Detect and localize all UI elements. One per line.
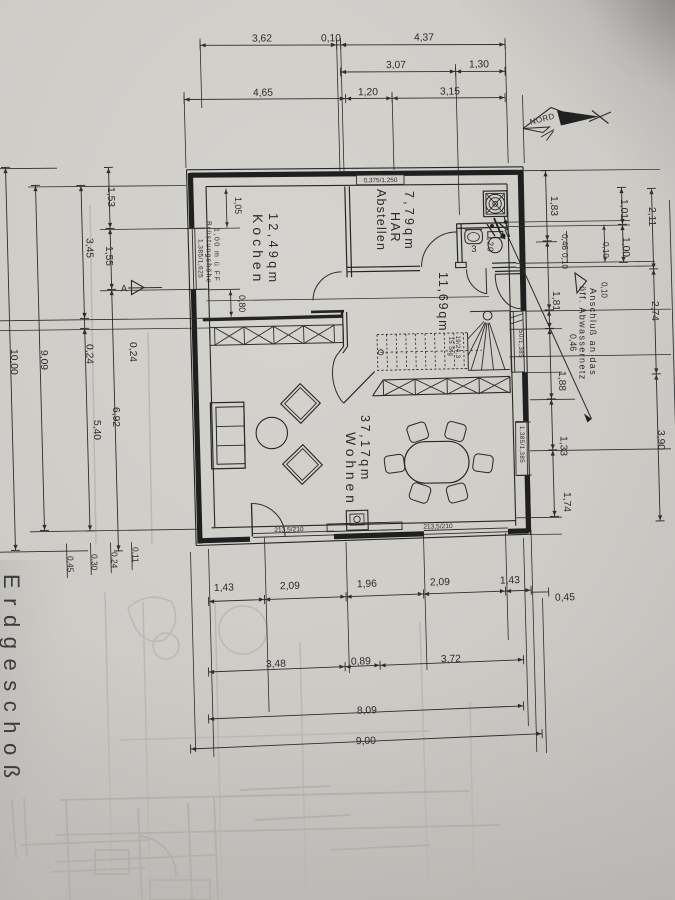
svg-text:HAR: HAR	[388, 212, 402, 243]
svg-text:0,24: 0,24	[127, 342, 138, 362]
svg-text:0,375/1,250: 0,375/1,250	[364, 177, 398, 184]
svg-text:,20: ,20	[486, 238, 496, 253]
svg-text:11,69qm: 11,69qm	[436, 272, 450, 332]
svg-text:öff. Abwassernetz: öff. Abwassernetz	[578, 286, 588, 381]
svg-text:0,10: 0,10	[601, 242, 610, 258]
svg-text:3,07: 3,07	[386, 60, 406, 71]
svg-text:3,15: 3,15	[440, 87, 460, 98]
svg-text:3,48: 3,48	[266, 659, 287, 671]
svg-text:1,00: 1,00	[620, 237, 631, 257]
svg-text:10,00: 10,00	[8, 349, 19, 375]
svg-text:Anschluß an das: Anschluß an das	[588, 288, 598, 376]
svg-text:7,79qm: 7,79qm	[402, 191, 416, 252]
svg-text:0,11: 0,11	[131, 547, 141, 563]
svg-text:0,10: 0,10	[321, 33, 341, 44]
svg-text:5,40: 5,40	[91, 420, 102, 440]
svg-text:1,81: 1,81	[550, 291, 561, 311]
svg-text:Erdgeschoß: Erdgeschoß	[0, 574, 24, 788]
svg-text:3: 3	[471, 244, 476, 255]
svg-text:213,5/210: 213,5/210	[274, 526, 304, 534]
svg-text:6,92: 6,92	[110, 407, 121, 427]
svg-text:2,09: 2,09	[430, 577, 451, 589]
svg-text:1,05: 1,05	[233, 197, 243, 214]
svg-text:15 Stg: 15 Stg	[447, 337, 453, 357]
svg-text:3,90: 3,90	[655, 430, 666, 450]
svg-text:3,62: 3,62	[252, 33, 272, 44]
svg-text:0,45: 0,45	[66, 556, 76, 573]
svg-text:0,89: 0,89	[351, 656, 372, 668]
svg-text:19/24,3: 19/24,3	[454, 336, 460, 359]
svg-text:8,09: 8,09	[357, 705, 378, 717]
svg-text:1,33: 1,33	[558, 436, 569, 456]
svg-text:0,80: 0,80	[237, 295, 247, 312]
svg-text:Kochen: Kochen	[250, 214, 266, 285]
svg-text:Brüstungshöhe: Brüstungshöhe	[205, 221, 212, 284]
svg-text:3,72: 3,72	[441, 654, 462, 666]
svg-text:3,45: 3,45	[84, 238, 95, 258]
svg-text:A: A	[121, 283, 128, 294]
svg-text:213,5/210: 213,5/210	[423, 523, 453, 531]
svg-text:50/1,385: 50/1,385	[517, 330, 523, 358]
svg-text:1,385/1,385: 1,385/1,385	[518, 426, 525, 463]
svg-text:4,65: 4,65	[253, 88, 273, 99]
svg-text:0,10: 0,10	[600, 282, 609, 298]
svg-text:1,00 m ü FF: 1,00 m ü FF	[213, 228, 220, 282]
svg-text:2,09: 2,09	[280, 581, 301, 593]
svg-text:1,88: 1,88	[556, 371, 567, 391]
svg-text:1,385/1,625: 1,385/1,625	[196, 239, 203, 278]
svg-text:1,53: 1,53	[105, 187, 116, 207]
svg-text:1,43: 1,43	[214, 583, 235, 595]
svg-text:1,43: 1,43	[500, 575, 521, 587]
svg-text:4,37: 4,37	[414, 33, 434, 44]
svg-text:Abstellen: Abstellen	[374, 189, 388, 251]
svg-text:0,30: 0,30	[90, 554, 100, 571]
svg-text:37,17qm: 37,17qm	[358, 415, 372, 482]
svg-text:1,55: 1,55	[103, 246, 114, 266]
svg-text:0,24: 0,24	[110, 552, 120, 569]
svg-text:0,24: 0,24	[84, 344, 95, 364]
svg-text:9,00: 9,00	[356, 736, 377, 748]
svg-text:0,46: 0,46	[560, 234, 569, 250]
svg-text:12,49qm: 12,49qm	[266, 213, 280, 285]
svg-text:9,09: 9,09	[38, 350, 49, 370]
svg-text:1,74: 1,74	[561, 492, 572, 512]
svg-text:0,46: 0,46	[568, 334, 578, 351]
svg-text:1,20: 1,20	[358, 87, 378, 98]
svg-text:Wohnen: Wohnen	[343, 432, 359, 507]
svg-text:1,96: 1,96	[357, 579, 378, 591]
svg-text:0,45: 0,45	[555, 592, 576, 604]
svg-text:2,74: 2,74	[649, 301, 660, 321]
